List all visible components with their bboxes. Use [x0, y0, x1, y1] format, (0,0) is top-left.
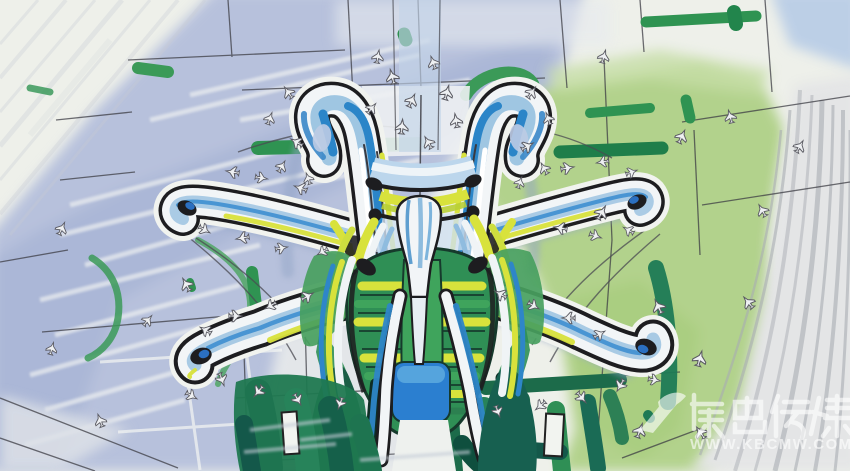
svg-text:WWW.KBCMW.COM: WWW.KBCMW.COM — [690, 436, 850, 453]
